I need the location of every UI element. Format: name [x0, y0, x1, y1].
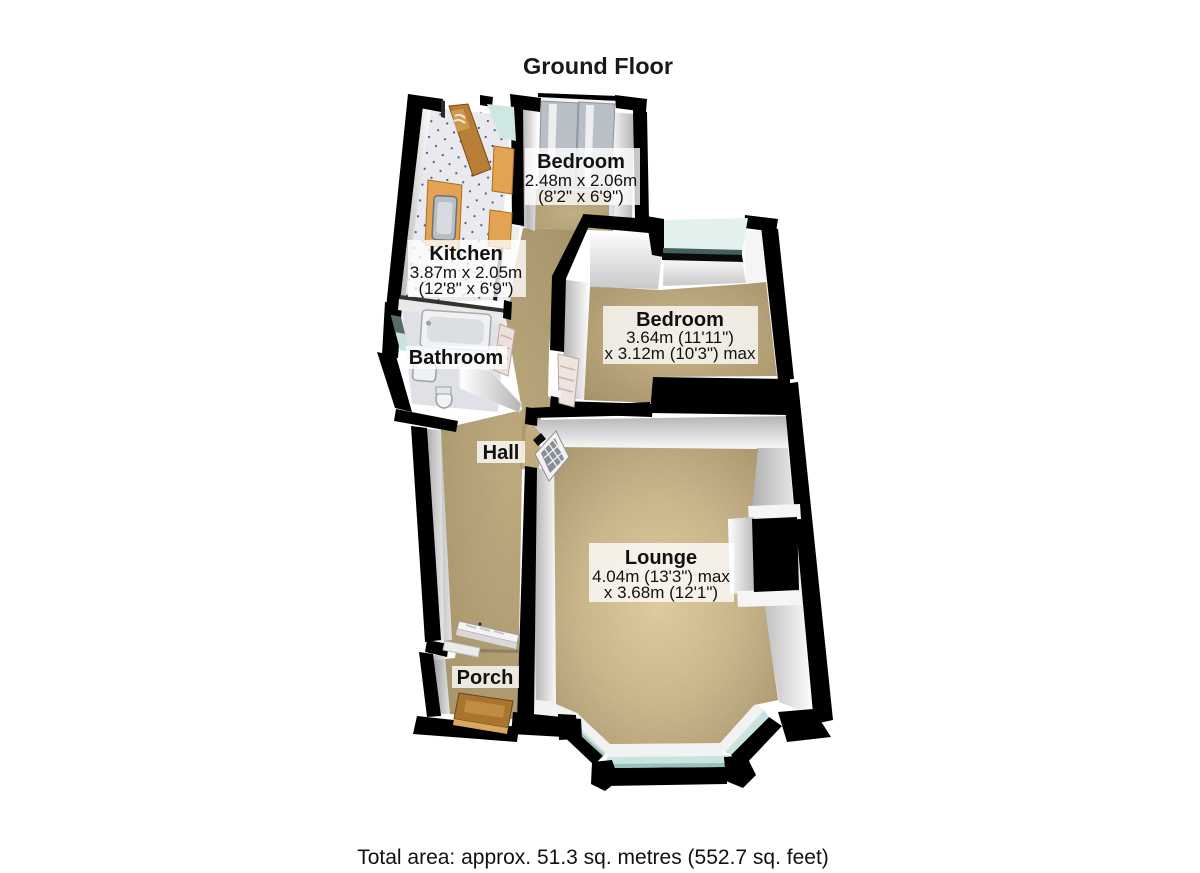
- svg-text:Kitchen: Kitchen: [429, 243, 502, 265]
- svg-text:Porch: Porch: [457, 667, 514, 689]
- svg-text:Lounge: Lounge: [625, 547, 697, 569]
- svg-text:(8'2" x 6'9"): (8'2" x 6'9"): [538, 187, 624, 206]
- svg-text:Total area: approx. 51.3 sq. m: Total area: approx. 51.3 sq. metres (552…: [357, 846, 829, 869]
- svg-text:x 3.12m (10'3") max: x 3.12m (10'3") max: [605, 344, 756, 363]
- svg-text:Ground Floor: Ground Floor: [523, 53, 673, 79]
- svg-text:Hall: Hall: [483, 442, 520, 464]
- svg-text:Bedroom: Bedroom: [537, 151, 625, 173]
- svg-text:x 3.68m (12'1"): x 3.68m (12'1"): [604, 583, 718, 602]
- svg-text:(12'8" x 6'9"): (12'8" x 6'9"): [418, 279, 513, 298]
- svg-text:Bathroom: Bathroom: [409, 347, 503, 369]
